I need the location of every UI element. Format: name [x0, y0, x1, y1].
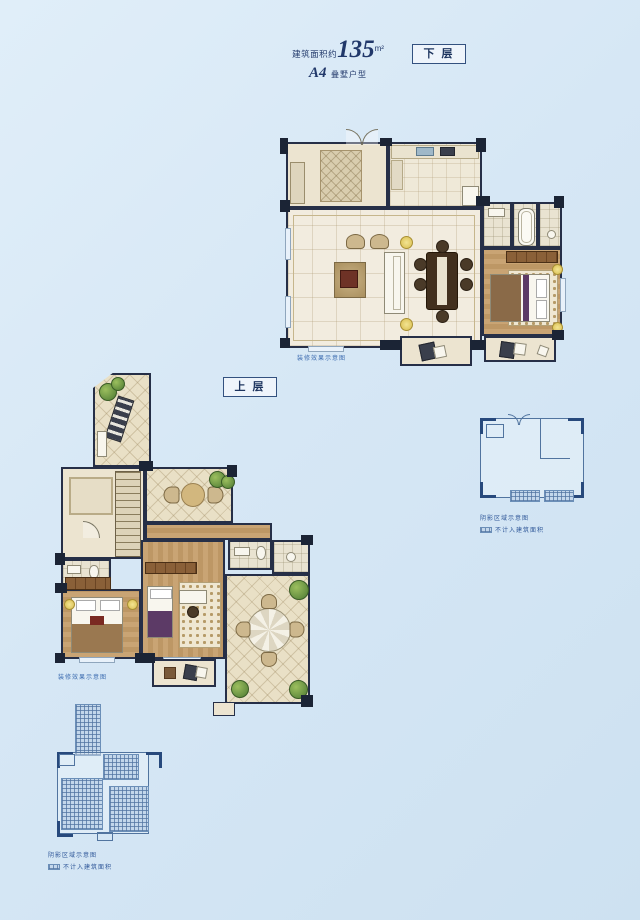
keyplan-wall-line — [540, 458, 570, 459]
window — [308, 346, 344, 352]
area-line: 建筑面积约135m² — [258, 40, 418, 62]
keyplan-step-tab — [97, 832, 113, 841]
wall-segment — [280, 138, 288, 154]
window — [79, 657, 115, 663]
washbasin — [67, 565, 81, 574]
bed — [490, 274, 550, 322]
model-type: 叠墅户型 — [331, 70, 367, 79]
corridor — [145, 523, 272, 540]
foyer — [286, 142, 388, 208]
staircase — [115, 471, 141, 557]
parasol-table — [247, 608, 291, 652]
upper-floor-plan — [55, 373, 310, 718]
sofa-cushion — [393, 256, 401, 310]
stove — [440, 147, 455, 156]
wall-segment — [135, 653, 155, 663]
dining-chair — [436, 240, 449, 253]
bed-runner — [523, 275, 529, 321]
closet — [69, 477, 113, 515]
wall-segment — [554, 196, 564, 208]
wardrobe — [506, 251, 558, 263]
washbasin — [488, 208, 505, 217]
keyplan-lower — [478, 412, 586, 504]
duvet — [491, 275, 521, 321]
sofa — [384, 252, 405, 314]
bedside-lamp — [64, 599, 75, 610]
bathroom — [512, 202, 538, 248]
bedroom — [482, 248, 562, 336]
bedside-lamp — [552, 264, 563, 275]
wall-segment — [280, 200, 290, 212]
render-note-upper: 装修效果示意图 — [58, 672, 107, 681]
armchair — [370, 234, 389, 249]
plant — [221, 475, 235, 489]
kitchen-counter — [391, 145, 479, 159]
terrace-table — [181, 483, 205, 507]
keyplan-lower-legend: 阴影区域示意图 不计入建筑面积 — [480, 513, 544, 534]
floor-lamp — [400, 236, 413, 249]
floorplan-poster: 建筑面积约135m² A4 叠墅户型 下 层 上 层 — [0, 0, 640, 920]
dining-chair — [460, 278, 473, 291]
wall-segment — [470, 340, 486, 350]
pillow — [100, 600, 120, 611]
foyer-rug — [320, 150, 362, 202]
tv-unit — [340, 270, 358, 288]
plant — [289, 580, 309, 600]
duvet — [148, 611, 172, 637]
keyplan-terrace-hatch — [109, 786, 149, 832]
terrace-chair — [261, 594, 277, 609]
terrace-chair — [261, 652, 277, 667]
balcony — [484, 336, 556, 362]
terrace-step — [213, 702, 235, 716]
plant — [111, 377, 125, 391]
wall-segment — [55, 583, 67, 593]
keyplan-terrace-hatch — [75, 704, 101, 756]
legend-area-note: 不计入建筑面积 — [495, 525, 544, 534]
area-value: 135 — [337, 36, 375, 63]
window — [285, 296, 291, 328]
model-line: A4 叠墅户型 — [258, 64, 418, 82]
keyplan-upper-legend: 阴影区域示意图 不计入建筑面积 — [48, 850, 112, 871]
dining-table — [426, 252, 458, 310]
keyplan-upper — [45, 702, 163, 842]
chair-cushion — [433, 345, 447, 359]
terrace-chair — [208, 487, 224, 504]
keyplan-wall-line — [540, 419, 541, 459]
terrace-chair — [164, 487, 180, 504]
master-bedroom — [61, 589, 141, 659]
garden-terrace — [225, 574, 310, 704]
bed — [147, 586, 173, 638]
throw-cushion — [90, 616, 104, 625]
washroom — [482, 202, 512, 248]
side-table — [537, 345, 550, 358]
plant — [231, 680, 249, 698]
pillow — [150, 589, 172, 599]
window — [285, 228, 291, 260]
shower-drain — [286, 552, 296, 562]
foyer-cabinet — [290, 162, 305, 204]
pillow — [76, 600, 96, 611]
dining-terrace — [145, 467, 233, 523]
title-block: 建筑面积约135m² A4 叠墅户型 — [258, 40, 418, 82]
render-note-lower: 装修效果示意图 — [297, 353, 346, 362]
wall-segment — [55, 653, 65, 663]
dining-chair — [414, 258, 427, 271]
balcony — [400, 336, 472, 366]
entry-door-arc — [362, 129, 378, 145]
wall-segment — [139, 461, 153, 471]
window — [560, 278, 566, 312]
chair-cushion — [195, 666, 208, 679]
side-table — [164, 667, 176, 679]
wall-segment — [476, 196, 490, 206]
kitchen — [388, 142, 482, 208]
shower-room-2 — [272, 540, 310, 574]
wall-segment — [55, 553, 65, 565]
chair-cushion — [513, 342, 527, 356]
sun-lounger — [105, 395, 135, 442]
living-dining-room — [286, 208, 482, 348]
lower-floor-label: 下 层 — [412, 44, 466, 64]
keyplan-stairs — [59, 754, 75, 766]
kitchen-side-counter — [391, 160, 403, 190]
table-runner — [437, 257, 447, 305]
balcony-upper — [152, 659, 216, 687]
stair-hall — [61, 467, 145, 559]
wall-segment — [280, 338, 290, 348]
wardrobe — [65, 577, 111, 590]
legend-area-note: 不计入建筑面积 — [63, 862, 112, 871]
toilet — [256, 546, 266, 560]
wall-segment — [301, 695, 313, 707]
bathtub — [518, 208, 535, 246]
shower-drain — [547, 230, 556, 239]
wall-segment — [227, 465, 237, 477]
keyplan-terrace-hatch — [103, 754, 139, 780]
pillow — [536, 300, 547, 319]
keyplan-corner — [480, 482, 496, 498]
pillow — [536, 279, 547, 298]
bed — [71, 597, 123, 653]
area-prefix: 建筑面积约 — [292, 49, 337, 59]
roof-terrace — [93, 373, 151, 467]
keyplan-entry-arc — [508, 414, 519, 425]
armchair — [346, 234, 365, 249]
keyplan-terrace-hatch — [61, 778, 103, 830]
hatch-swatch — [480, 527, 492, 533]
duvet — [72, 624, 122, 652]
dining-chair — [436, 310, 449, 323]
wall-segment — [380, 340, 402, 350]
legend-line-1: 阴影区域示意图 — [48, 850, 112, 859]
door-arc — [83, 521, 100, 538]
shower-room — [538, 202, 562, 248]
wardrobe — [145, 562, 197, 574]
dining-chair — [460, 258, 473, 271]
entry-door-arc — [346, 129, 362, 145]
bedside-lamp — [127, 599, 138, 610]
terrace-sink — [97, 431, 107, 457]
wall-segment — [380, 138, 392, 146]
desk-chair — [187, 606, 199, 618]
legend-line-2: 不计入建筑面积 — [48, 862, 112, 871]
legend-line-1: 阴影区域示意图 — [480, 513, 544, 522]
legend-line-2: 不计入建筑面积 — [480, 525, 544, 534]
keyplan-entry-arc — [519, 414, 530, 425]
keyplan-balcony-hatch — [544, 490, 574, 502]
keyplan-corner — [146, 752, 162, 768]
keyplan-balcony-hatch — [510, 490, 540, 502]
wall-segment — [301, 535, 313, 545]
keyplan-corner — [568, 418, 584, 434]
hatch-swatch — [48, 864, 60, 870]
lower-floor-plan — [280, 138, 565, 368]
dining-chair — [414, 278, 427, 291]
terrace-chair — [236, 622, 251, 638]
terrace-chair — [290, 622, 305, 638]
wall-segment — [476, 138, 486, 152]
desk — [179, 590, 207, 604]
wall-segment — [552, 330, 564, 340]
floor-lamp — [400, 318, 413, 331]
area-unit: m² — [375, 44, 384, 53]
keyplan-stairs — [486, 424, 504, 438]
bedroom-2 — [141, 540, 225, 659]
washbasin — [234, 547, 250, 556]
bathroom-2 — [228, 540, 272, 570]
model-code: A4 — [309, 65, 327, 81]
kitchen-sink — [416, 147, 434, 156]
